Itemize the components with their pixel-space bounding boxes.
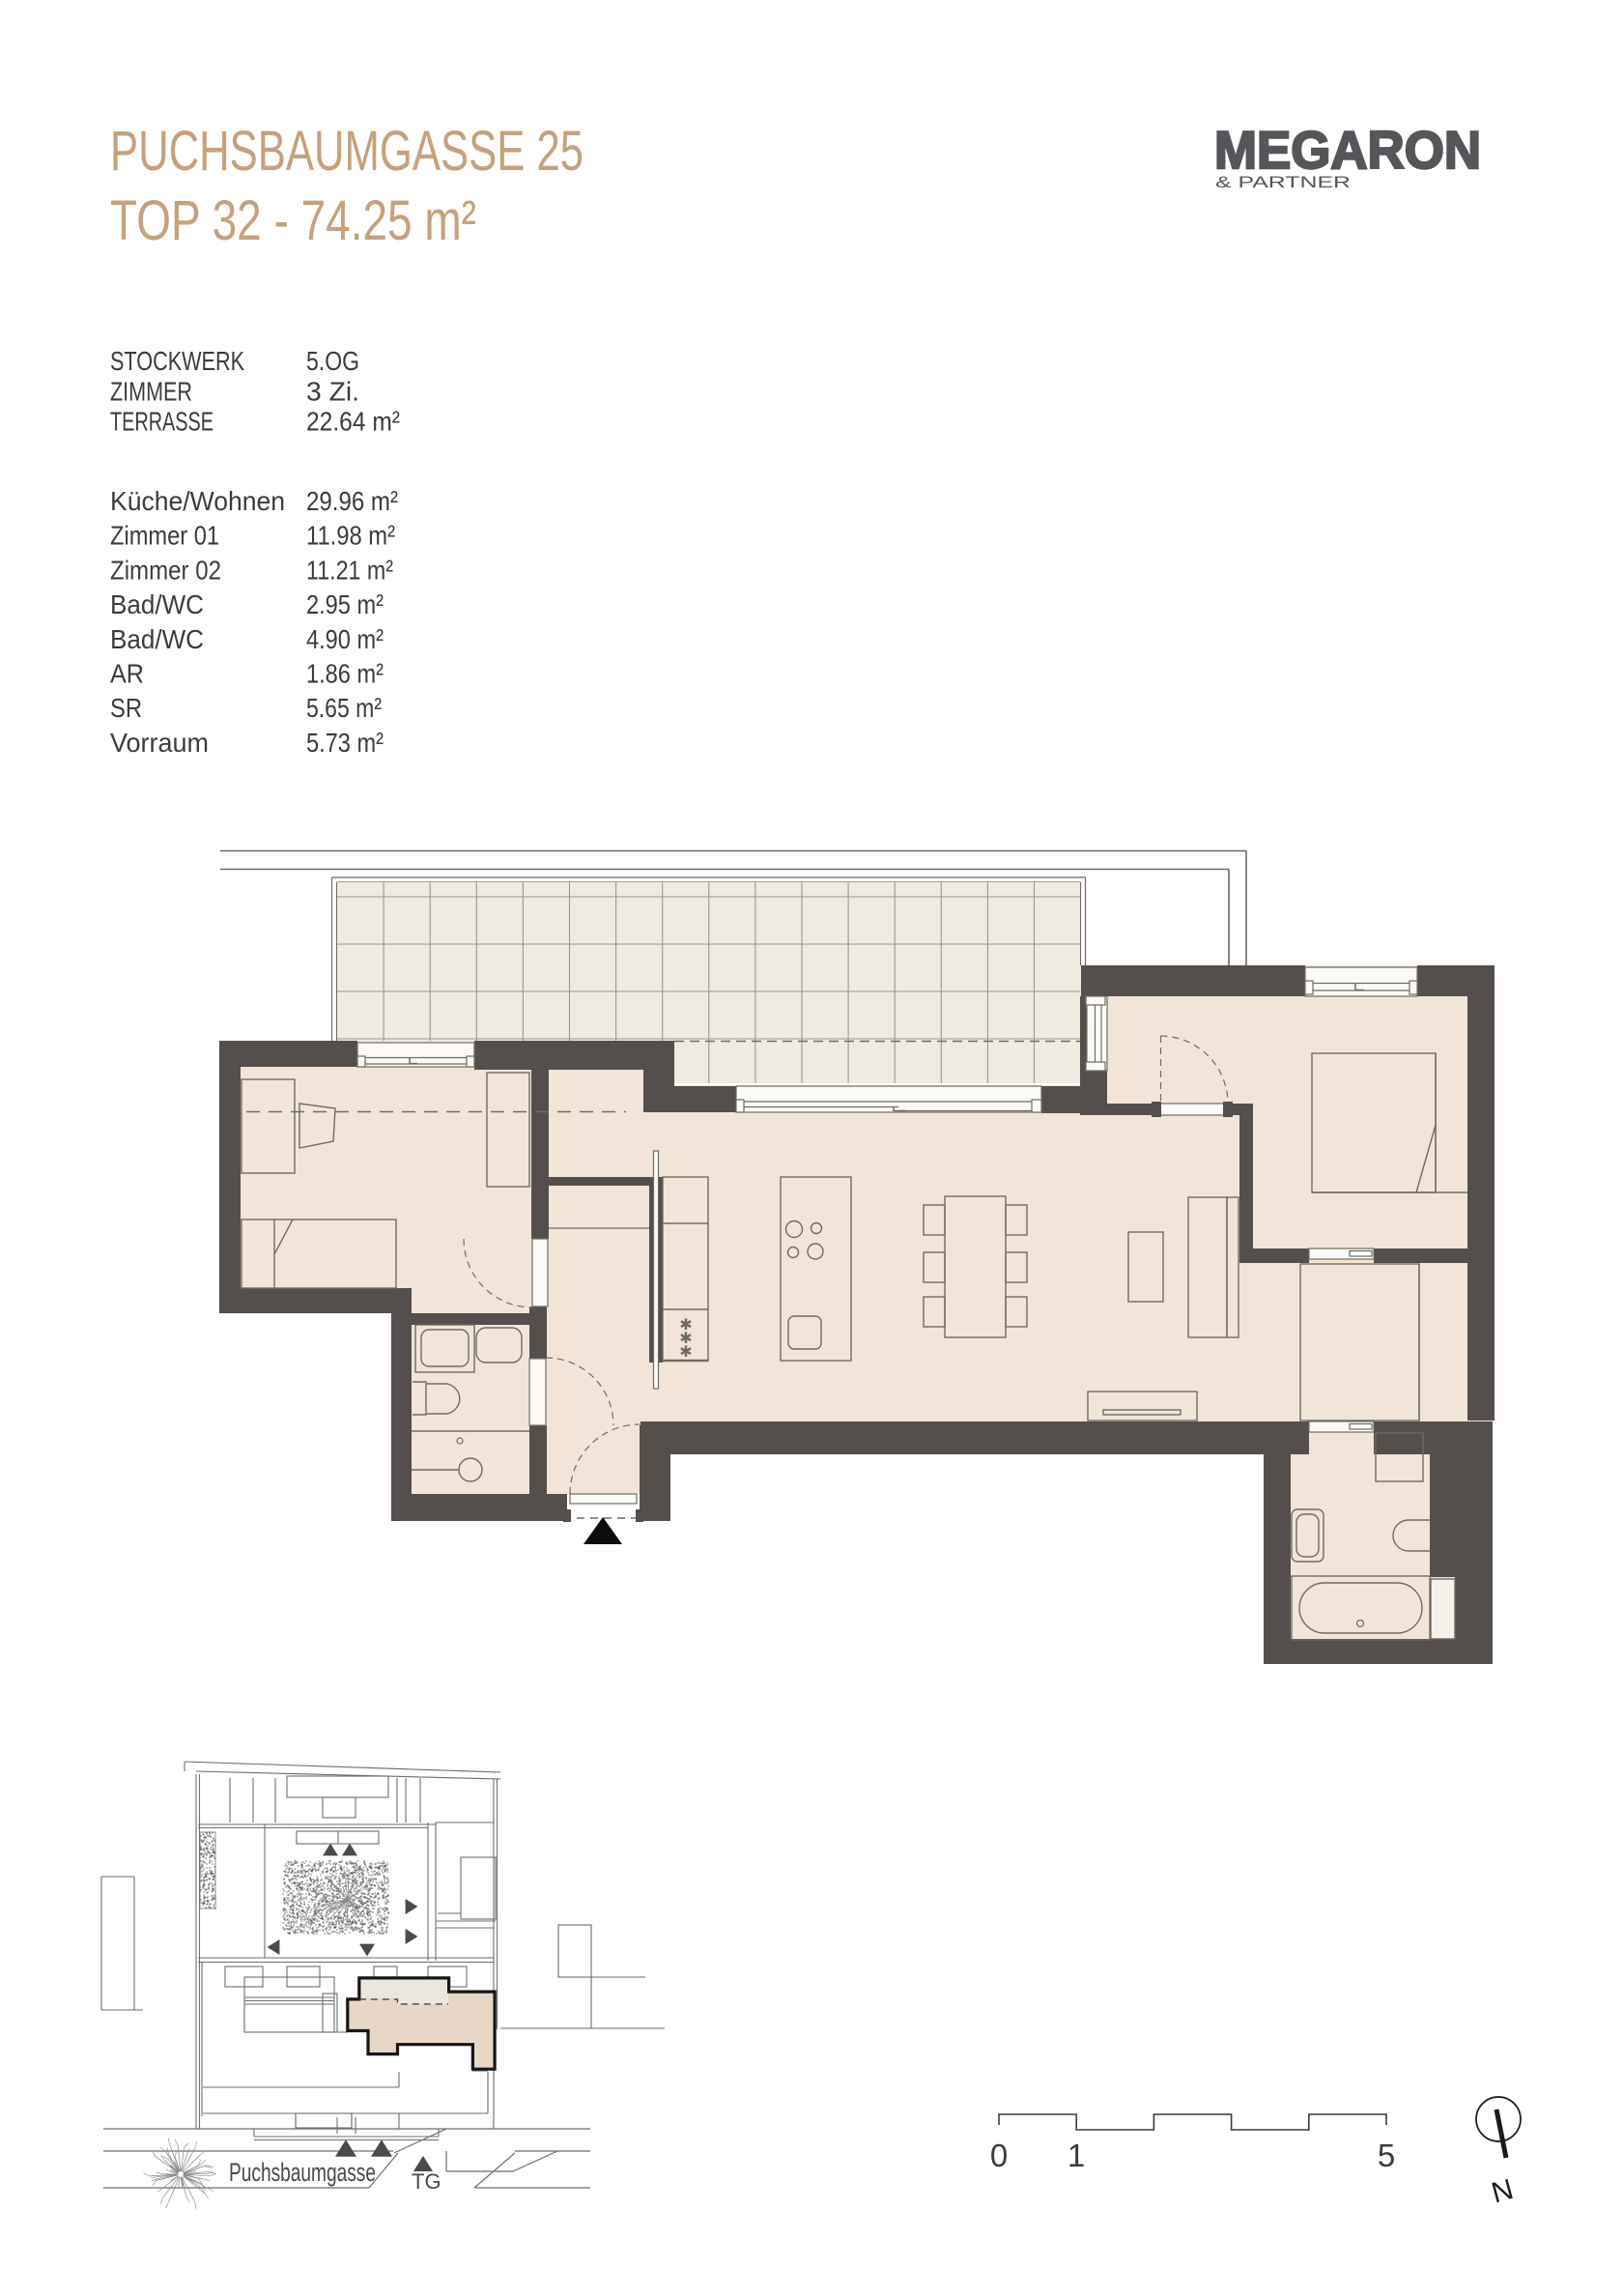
svg-text:Zimmer 02: Zimmer 02 [110,555,221,585]
svg-text:SR: SR [110,693,142,723]
svg-text:0: 0 [990,2138,1008,2173]
svg-text:TERRASSE: TERRASSE [110,407,214,437]
svg-text:TG: TG [412,2169,441,2194]
svg-text:2.95 m²: 2.95 m² [306,589,384,619]
svg-text:1: 1 [1068,2138,1085,2173]
svg-text:MEGARON: MEGARON [1214,120,1481,180]
svg-text:TOP 32 - 74.25 m²: TOP 32 - 74.25 m² [110,189,476,252]
svg-text:5.OG: 5.OG [306,346,359,376]
svg-text:3 Zi.: 3 Zi. [306,376,359,406]
svg-text:29.96 m²: 29.96 m² [306,486,398,516]
svg-text:STOCKWERK: STOCKWERK [110,346,244,376]
svg-text:Bad/WC: Bad/WC [110,589,204,619]
svg-text:5.73 m²: 5.73 m² [306,728,384,758]
svg-text:Küche/Wohnen: Küche/Wohnen [110,486,285,516]
svg-text:5.65 m²: 5.65 m² [306,693,382,723]
svg-text:11.98 m²: 11.98 m² [306,521,395,551]
svg-text:Puchsbaumgasse: Puchsbaumgasse [229,2158,376,2187]
svg-text:22.64 m²: 22.64 m² [306,407,400,437]
svg-text:✱: ✱ [679,1344,692,1361]
svg-text:11.21 m²: 11.21 m² [306,555,393,585]
svg-text:1.86 m²: 1.86 m² [306,659,384,689]
svg-text:Bad/WC: Bad/WC [110,624,204,654]
svg-text:AR: AR [110,659,144,689]
svg-text:4.90 m²: 4.90 m² [306,624,384,654]
svg-text:Vorraum: Vorraum [110,728,209,758]
svg-text:5: 5 [1378,2138,1395,2173]
svg-text:Zimmer 01: Zimmer 01 [110,521,219,551]
svg-text:ZIMMER: ZIMMER [110,376,192,406]
svg-text:& PARTNER: & PARTNER [1215,173,1351,191]
svg-text:PUCHSBAUMGASSE 25: PUCHSBAUMGASSE 25 [110,120,584,183]
